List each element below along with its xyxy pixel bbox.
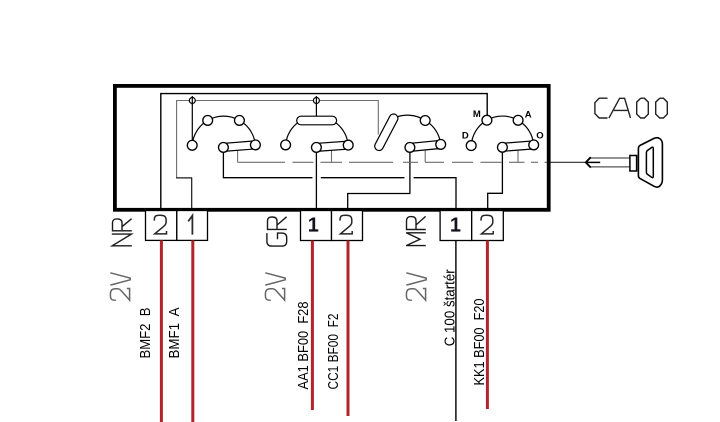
svg-text:M: M xyxy=(473,109,481,120)
svg-text:CC1 BF00 F2: CC1 BF00 F2 xyxy=(325,314,342,390)
svg-text:AA1 BF00 F28: AA1 BF00 F28 xyxy=(295,302,312,390)
svg-text:KK1 BF00 F20: KK1 BF00 F20 xyxy=(471,299,488,386)
svg-text:1: 1 xyxy=(308,215,319,237)
svg-text:C 100 štartér: C 100 štartér xyxy=(442,269,459,346)
svg-text:O: O xyxy=(536,130,543,141)
svg-text:A: A xyxy=(525,109,532,120)
svg-text:BMF1 A: BMF1 A xyxy=(166,308,183,359)
svg-text:1: 1 xyxy=(450,215,461,237)
svg-text:D: D xyxy=(462,130,469,141)
svg-text:BMF2 B: BMF2 B xyxy=(137,308,154,359)
